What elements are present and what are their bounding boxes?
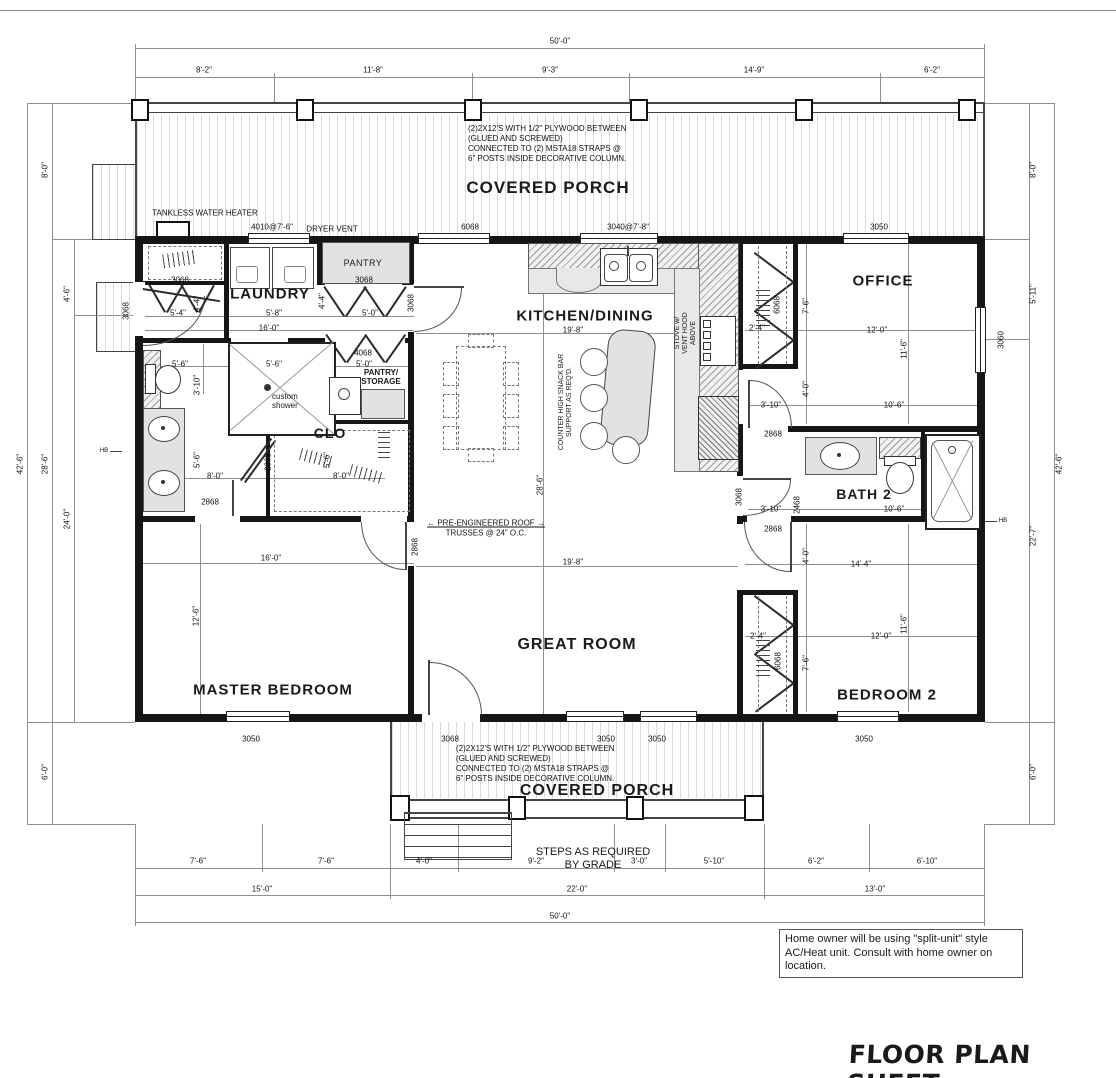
- dim-label: 6'-0": [41, 764, 50, 780]
- dim-label: 9'-3": [542, 66, 558, 75]
- dim-label: 7'-6": [190, 857, 206, 866]
- dim-label: 6'-2": [924, 66, 940, 75]
- dim-label: 3'-10": [761, 505, 781, 514]
- note-snack-bar: COUNTER HIGH SNACK BAR SUPPORT AS REQ'D.: [558, 354, 574, 450]
- dim-label: 5'-6": [323, 452, 332, 468]
- dim-label: 2868: [264, 453, 273, 471]
- dim-label: 22'-7": [1029, 526, 1038, 546]
- dim-label: 2868: [764, 525, 782, 534]
- dim-label: 3050: [242, 735, 260, 744]
- window-3050: [843, 233, 909, 244]
- dim-label: 50'-0": [550, 37, 570, 46]
- room-label-clo: CLO: [314, 425, 347, 441]
- island-counter: [599, 328, 657, 448]
- dim-label: 2868: [411, 538, 420, 556]
- dim-label: 8'-0": [333, 472, 349, 481]
- hose-bib-label: HB: [999, 518, 1007, 524]
- dim-label: 4'-0": [416, 857, 432, 866]
- dim-label: 3060: [997, 331, 1006, 349]
- note-dryer-vent: DRYER VENT: [306, 225, 357, 234]
- hose-bib-label: HB: [100, 448, 108, 454]
- dim-label: 8'-0": [41, 162, 50, 178]
- dim-label: 4'-0": [802, 548, 811, 564]
- dim-label: 2'-4": [749, 324, 765, 333]
- dim-label: 6'-10": [917, 857, 937, 866]
- chair: [503, 426, 519, 450]
- label-custom-shower: custom shower: [272, 392, 298, 410]
- dim-label: 4068: [354, 349, 372, 358]
- dim-label: 8'-0": [207, 472, 223, 481]
- stool: [580, 348, 608, 376]
- room-label-office: OFFICE: [853, 273, 914, 290]
- dim-label: 22'-0": [567, 885, 587, 894]
- dim-label: 5'-8": [266, 309, 282, 318]
- porch-post: [958, 99, 976, 121]
- note-trusses-1: PRE-ENGINEERED ROOF: [427, 519, 545, 528]
- room-label-covered-porch-top: COVERED PORCH: [466, 178, 629, 198]
- dim-label: 5'-0": [362, 309, 378, 318]
- dim-label: 3068: [355, 276, 373, 285]
- door-arc: [414, 288, 462, 332]
- dim-label: 3068: [441, 735, 459, 744]
- porch-steps: [404, 812, 512, 860]
- chair: [468, 448, 494, 462]
- room-label-bedroom2: BEDROOM 2: [837, 687, 937, 704]
- clothes-rod: [756, 290, 770, 326]
- dim-label: 6'-2": [808, 857, 824, 866]
- dim-label: 4'-4": [318, 293, 327, 309]
- stool: [580, 384, 608, 412]
- sheet-border-line: [0, 10, 1116, 11]
- dim-label: 3050: [855, 735, 873, 744]
- note-porch-construction-top: (2)2X12'S WITH 1/2" PLYWOOD BETWEEN (GLU…: [468, 124, 643, 164]
- chair: [468, 334, 494, 348]
- refrigerator: [698, 396, 739, 460]
- dim-label: 3068: [122, 302, 131, 320]
- dim-label: 4'-4": [193, 296, 202, 312]
- chair: [443, 394, 459, 418]
- dim-label: 3068: [407, 294, 416, 312]
- note-tankless: TANKLESS WATER HEATER: [152, 209, 258, 218]
- chair: [443, 426, 459, 450]
- clothes-rod: [756, 640, 770, 676]
- dim-label: 15'-0": [252, 885, 272, 894]
- shower-drain: [264, 384, 271, 391]
- dim-label: 5'-11": [1029, 284, 1038, 304]
- room-label-pantry: PANTRY: [344, 258, 383, 268]
- floor-plan-sheet: HB HB COVERED PORCH LAUNDRY PANTRY KITCH…: [0, 0, 1116, 1078]
- dim-label: 3'-0": [631, 857, 647, 866]
- porch-post: [795, 99, 813, 121]
- dim-label: 28'-6": [41, 454, 50, 474]
- dim-label: 6068: [773, 296, 782, 314]
- kitchen-counter: [674, 268, 700, 472]
- exterior-steps: [92, 164, 137, 240]
- dim-label: 12'-6": [192, 606, 201, 626]
- dim-label: 3050: [870, 223, 888, 232]
- dim-label: 8'-0": [1029, 162, 1038, 178]
- window-3050: [226, 711, 290, 722]
- dim-label: 7'-6": [318, 857, 334, 866]
- dim-label: 4010@7'-6": [251, 223, 293, 232]
- note-porch-construction-bottom: (2)2X12'S WITH 1/2" PLYWOOD BETWEEN (GLU…: [456, 744, 631, 784]
- toilet: [155, 365, 181, 394]
- dim-label: 10'-6": [884, 505, 904, 514]
- room-label-pantry-storage: PANTRY/ STORAGE: [361, 368, 400, 386]
- dim-label: 3'-10": [761, 401, 781, 410]
- dim-label: 2868: [201, 498, 219, 507]
- room-label-great-room: GREAT ROOM: [517, 636, 636, 654]
- dim-label: 19'-8": [563, 558, 583, 567]
- dim-label: 42'-6": [1055, 454, 1064, 474]
- window-3050: [640, 711, 697, 722]
- dim-label: 5'-6": [266, 360, 282, 369]
- chair: [443, 362, 459, 386]
- window-6068: [418, 233, 490, 244]
- window-3050: [566, 711, 624, 722]
- dim-label: 3050: [597, 735, 615, 744]
- note-stove: STOVE w/ VENT HOOD ABOVE: [674, 312, 698, 354]
- porch-post: [630, 99, 648, 121]
- dim-label: 12'-0": [867, 326, 887, 335]
- dim-label: 3068: [735, 488, 744, 506]
- dim-label: 16'-0": [259, 324, 279, 333]
- dim-label: 3050: [648, 735, 666, 744]
- dim-label: 3068: [171, 276, 189, 285]
- dim-label: 7'-6": [802, 655, 811, 671]
- dim-label: 6'-0": [1029, 764, 1038, 780]
- hose-bib-line: [110, 451, 122, 452]
- dining-table: [456, 346, 506, 450]
- stool: [580, 422, 608, 450]
- room-label-master-bedroom: MASTER BEDROOM: [193, 682, 353, 699]
- dim-label: 6068: [774, 652, 783, 670]
- dim-label: 4'-6": [63, 286, 72, 302]
- dim-label: 5'-0": [356, 360, 372, 369]
- window-4010: [248, 233, 310, 244]
- clothes-rod: [378, 432, 390, 462]
- dim-label: 5'-6": [193, 452, 202, 468]
- dim-label: 2868: [764, 430, 782, 439]
- dim-label: 28'-6": [536, 475, 545, 495]
- dim-label: 42'-6": [16, 454, 25, 474]
- dim-label: 6068: [461, 223, 479, 232]
- dim-label: 14'-9": [744, 66, 764, 75]
- dim-label: 5'-10": [704, 857, 724, 866]
- dim-label: 3'-10": [193, 375, 202, 395]
- note-trusses-2: TRUSSES @ 24" O.C.: [446, 529, 527, 538]
- porch-post: [464, 99, 482, 121]
- dim-label: 13'-0": [865, 885, 885, 894]
- door-arc: [430, 662, 482, 715]
- room-label-laundry: LAUNDRY: [230, 286, 310, 303]
- dim-label: 5'-4": [170, 309, 186, 318]
- dim-label: 10'-6": [884, 401, 904, 410]
- dim-label: 50'-0": [550, 912, 570, 921]
- dim-label: 19'-8": [563, 326, 583, 335]
- sheet-title: FLOOR PLAN SHEET: [846, 1040, 1099, 1078]
- dim-label: 12'-0": [871, 632, 891, 641]
- dim-label: 7'-6": [802, 298, 811, 314]
- porch-post: [131, 99, 149, 121]
- chair: [503, 362, 519, 386]
- dim-label: 16'-0": [261, 554, 281, 563]
- dim-label: 8'-2": [196, 66, 212, 75]
- dim-label: 3040@7'-8": [607, 223, 649, 232]
- room-label-covered-porch-bottom: COVERED PORCH: [520, 782, 674, 800]
- dim-label: 5'-6": [172, 360, 188, 369]
- dim-label: 11'-8": [363, 66, 383, 75]
- chair: [503, 394, 519, 418]
- room-label-bath2: BATH 2: [836, 486, 892, 502]
- dim-label: 2468: [793, 496, 802, 514]
- dim-label: 24'-0": [63, 509, 72, 529]
- note-ac-unit: Home owner will be using "split-unit" st…: [779, 929, 1023, 978]
- dim-label: 11'-6": [900, 614, 909, 634]
- porch-post: [296, 99, 314, 121]
- dim-label: 4'-0": [802, 381, 811, 397]
- dim-label: 2'-4": [750, 632, 766, 641]
- dim-label: 11'-6": [900, 339, 909, 359]
- room-label-kitchen-dining: KITCHEN/DINING: [516, 308, 653, 325]
- storage-counter: [361, 389, 405, 419]
- window-3060: [975, 307, 986, 373]
- stool: [612, 436, 640, 464]
- dim-label: 14'-4": [851, 560, 871, 569]
- porch-post: [744, 795, 764, 821]
- window-3050: [837, 711, 899, 722]
- hose-bib-line: [985, 521, 997, 522]
- dim-label: 9'-2": [528, 857, 544, 866]
